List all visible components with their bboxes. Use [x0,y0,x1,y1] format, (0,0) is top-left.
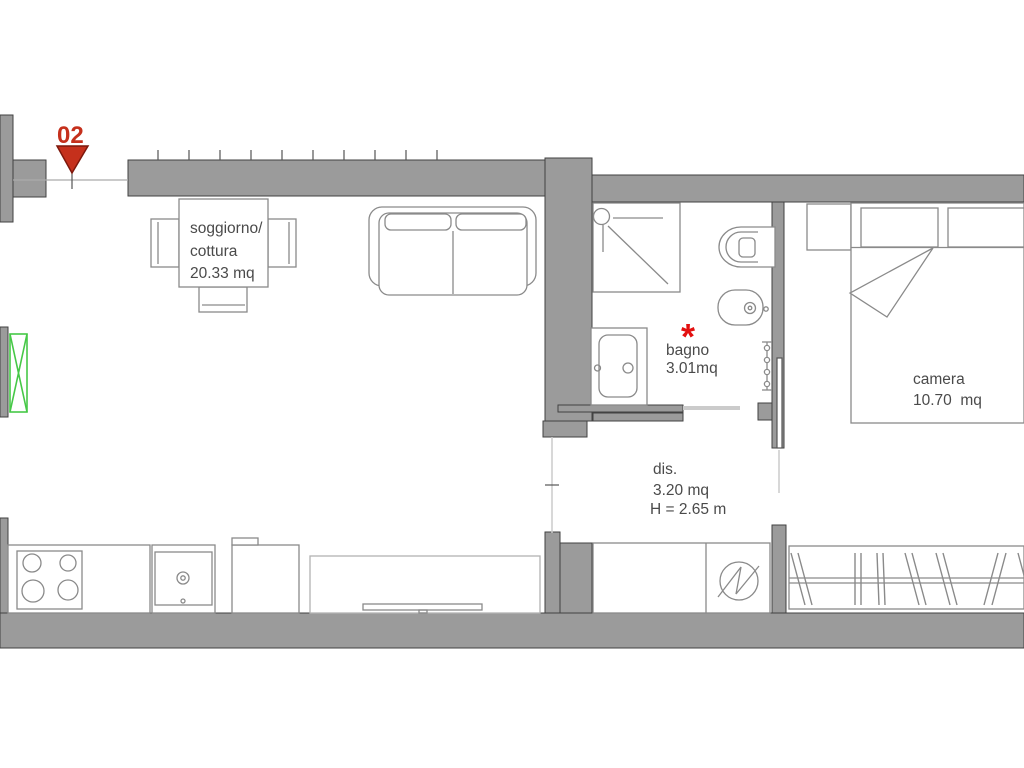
label-bagno: * bagno 3.01mq [666,316,718,377]
bed [850,203,1024,423]
towel-radiator-icon [762,342,772,390]
kitchen-column-unit [232,538,299,613]
nightstand [807,204,851,250]
svg-text:dis.: dis. [653,461,677,478]
bathroom-sink [591,328,647,405]
sofa [369,207,536,295]
toilet [719,227,775,267]
hall-closet [593,543,770,613]
shower [593,203,680,292]
chair-left [151,219,179,267]
svg-text:3.20 mq: 3.20 mq [653,482,709,499]
marker-triangle-icon [57,146,88,173]
chair-bottom [199,287,247,312]
svg-text:bagno: bagno [666,342,709,359]
svg-text:soggiorno/: soggiorno/ [190,220,263,237]
window-symbol-icon [10,334,27,412]
pillow [861,208,938,247]
bedroom-door-leaf [777,358,782,493]
floor-plan-page: 02 soggiorno/ cottura 20.33 mq [0,0,1024,768]
wall-ticks [158,150,437,160]
opening-soggiorno-dis [545,437,559,533]
unit-marker-number: 02 [57,122,84,149]
svg-text:3.01mq: 3.01mq [666,360,718,377]
label-dis: dis. 3.20 mq H = 2.65 m [650,461,726,518]
svg-text:H = 2.65 m: H = 2.65 m [650,501,726,518]
bedroom-wardrobe [789,546,1024,609]
kitchen-sink [152,545,215,613]
svg-text:20.33 mq: 20.33 mq [190,265,255,282]
tv-sideboard [310,556,540,613]
cooktop [17,551,82,609]
pillow [948,208,1024,247]
svg-text:camera: camera [913,371,965,388]
entry-marker: 02 [57,122,88,173]
chair-right [268,219,296,267]
svg-text:10.70 mq: 10.70 mq [913,392,982,409]
bidet [718,290,768,325]
svg-text:cottura: cottura [190,243,238,260]
floor-plan: 02 soggiorno/ cottura 20.33 mq [0,0,1024,768]
